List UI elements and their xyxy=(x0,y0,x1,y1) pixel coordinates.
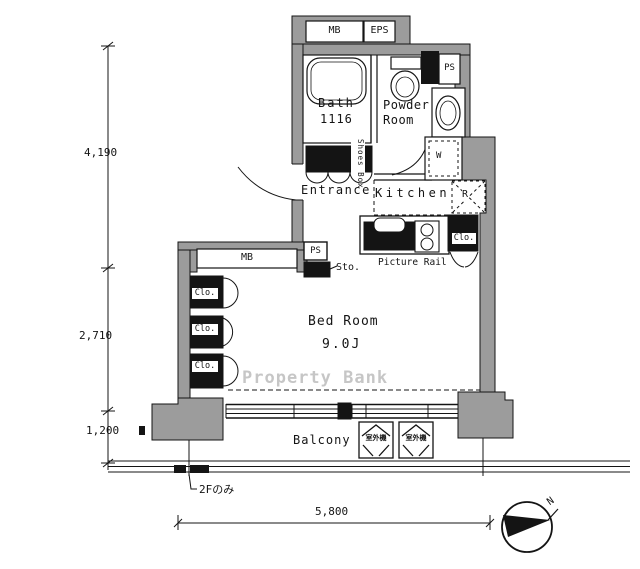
ps-top-label: PS xyxy=(439,64,460,73)
powder-room-label-2: Room xyxy=(383,114,414,126)
kitchen-closet-label: Clo. xyxy=(451,232,477,245)
powder-room-label-1: Powder xyxy=(383,99,429,111)
floorplan-page: MB EPS PS Bath 1116 Powder Room W Kitche… xyxy=(0,0,640,569)
kitchen-sink-icon xyxy=(374,218,405,232)
balcony-windows xyxy=(226,403,458,419)
bedroom-closet-label-2: Clo. xyxy=(191,323,219,336)
dimension-bottom-width: 5,800 xyxy=(315,506,348,517)
bedroom-closet-label-1: Clo. xyxy=(191,287,219,300)
dimension-left-lower: 1,200 xyxy=(86,425,119,436)
door-arc xyxy=(238,167,296,200)
washer-space xyxy=(425,137,462,180)
bedroom-label: Bed Room xyxy=(308,315,379,328)
floorplan-drawing xyxy=(0,0,640,569)
shoes-box-label: Shoes Box xyxy=(357,139,365,189)
ps-hall-label: PS xyxy=(304,247,327,256)
entrance-door xyxy=(238,164,304,200)
watermark: Property Bank xyxy=(242,370,388,387)
kitchen-label: Kitchen xyxy=(375,187,450,199)
outdoor-unit-label-1: 室外機 xyxy=(359,435,393,442)
sink-nook xyxy=(432,88,465,137)
compass-icon xyxy=(502,502,558,552)
bath-size-label: 1116 xyxy=(320,113,353,125)
dimension-left-upper: 4,190 xyxy=(84,147,117,158)
floor-note-label: 2Fのみ xyxy=(199,484,234,495)
meter-box-top-label: MB xyxy=(306,26,363,36)
eps-label: EPS xyxy=(364,26,395,36)
kitchen-counter xyxy=(360,216,449,254)
bedroom-closet-label-3: Clo. xyxy=(191,360,219,373)
outdoor-unit-label-2: 室外機 xyxy=(399,435,433,442)
bedroom-size-label: 9.0J xyxy=(322,338,361,351)
picture-rail-label: Picture Rail xyxy=(378,258,447,268)
balcony-label: Balcony xyxy=(293,434,351,446)
dimension-left-middle: 2,710 xyxy=(79,330,112,341)
refrigerator-space-label: R xyxy=(462,190,468,200)
bedroom-meter-box-label: MB xyxy=(197,253,297,263)
storage-label: Sto. xyxy=(336,263,360,273)
bath-label: Bath xyxy=(318,97,355,109)
washer-space-label: W xyxy=(436,152,441,161)
